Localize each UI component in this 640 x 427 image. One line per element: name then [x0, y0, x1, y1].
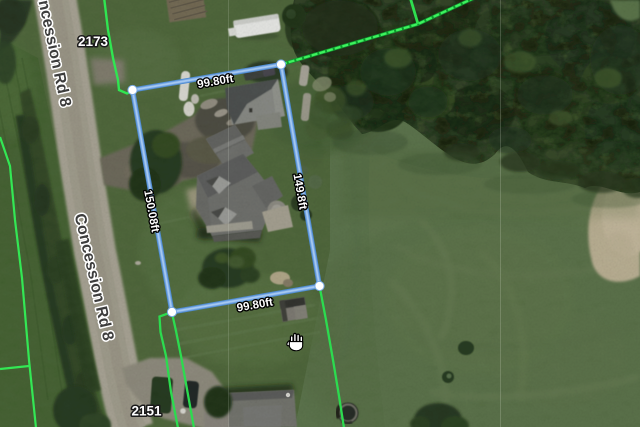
svg-text:2173: 2173 [78, 34, 109, 49]
svg-text:2151: 2151 [131, 404, 162, 419]
